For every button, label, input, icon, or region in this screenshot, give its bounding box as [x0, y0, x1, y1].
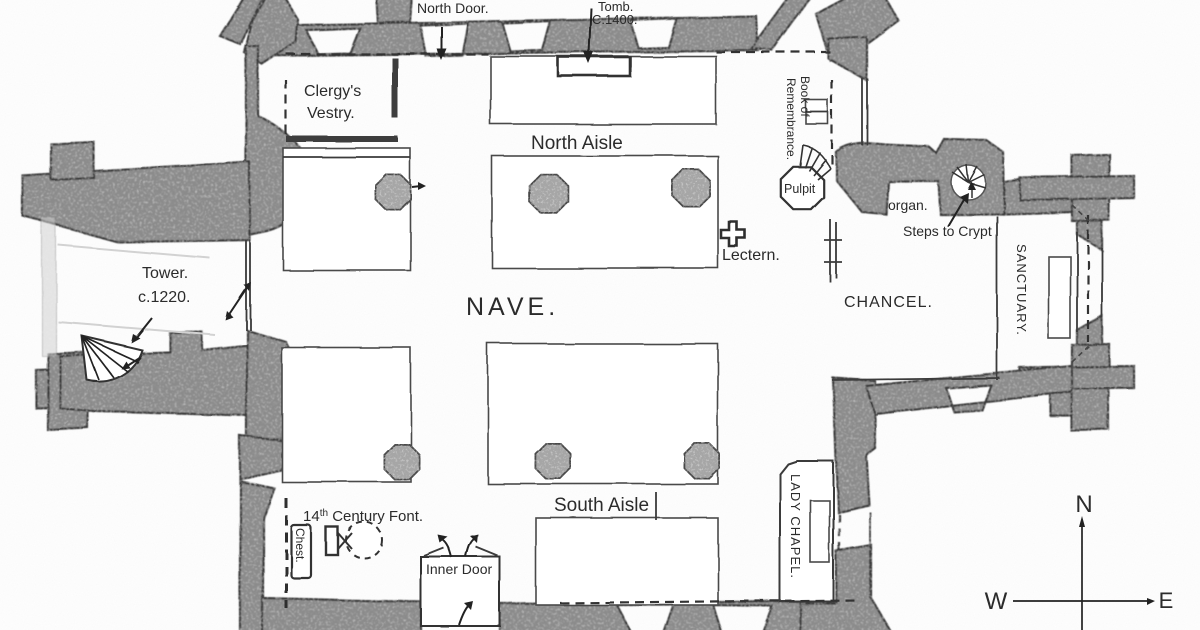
svg-text:Pulpit: Pulpit	[784, 182, 816, 196]
svg-text:Lectern.: Lectern.	[722, 247, 780, 264]
svg-text:Tower.: Tower.	[142, 265, 188, 282]
svg-text:W: W	[985, 588, 1008, 615]
svg-text:N: N	[1075, 491, 1092, 518]
svg-text:South Aisle: South Aisle	[554, 495, 649, 516]
svg-text:Steps to Crypt: Steps to Crypt	[903, 223, 992, 239]
svg-text:Chest.: Chest.	[293, 528, 307, 563]
svg-text:North Door.: North Door.	[417, 0, 489, 16]
svg-text:LADY CHAPEL.: LADY CHAPEL.	[788, 474, 803, 579]
svg-text:North Aisle: North Aisle	[531, 133, 623, 154]
svg-text:Clergy's: Clergy's	[304, 83, 361, 100]
svg-text:C.1400.: C.1400.	[592, 12, 638, 27]
svg-text:Vestry.: Vestry.	[307, 105, 355, 122]
svg-text:c.1220.: c.1220.	[138, 289, 190, 306]
svg-text:CHANCEL.: CHANCEL.	[844, 294, 933, 311]
svg-text:Inner Door: Inner Door	[426, 561, 492, 577]
svg-text:E: E	[1159, 588, 1174, 613]
svg-text:organ.: organ.	[888, 197, 928, 213]
svg-text:SANCTUARY.: SANCTUARY.	[1014, 244, 1029, 336]
svg-text:Book of: Book of	[798, 76, 812, 117]
svg-text:NAVE.: NAVE.	[466, 293, 559, 321]
svg-text:Remembrance.: Remembrance.	[784, 78, 798, 160]
